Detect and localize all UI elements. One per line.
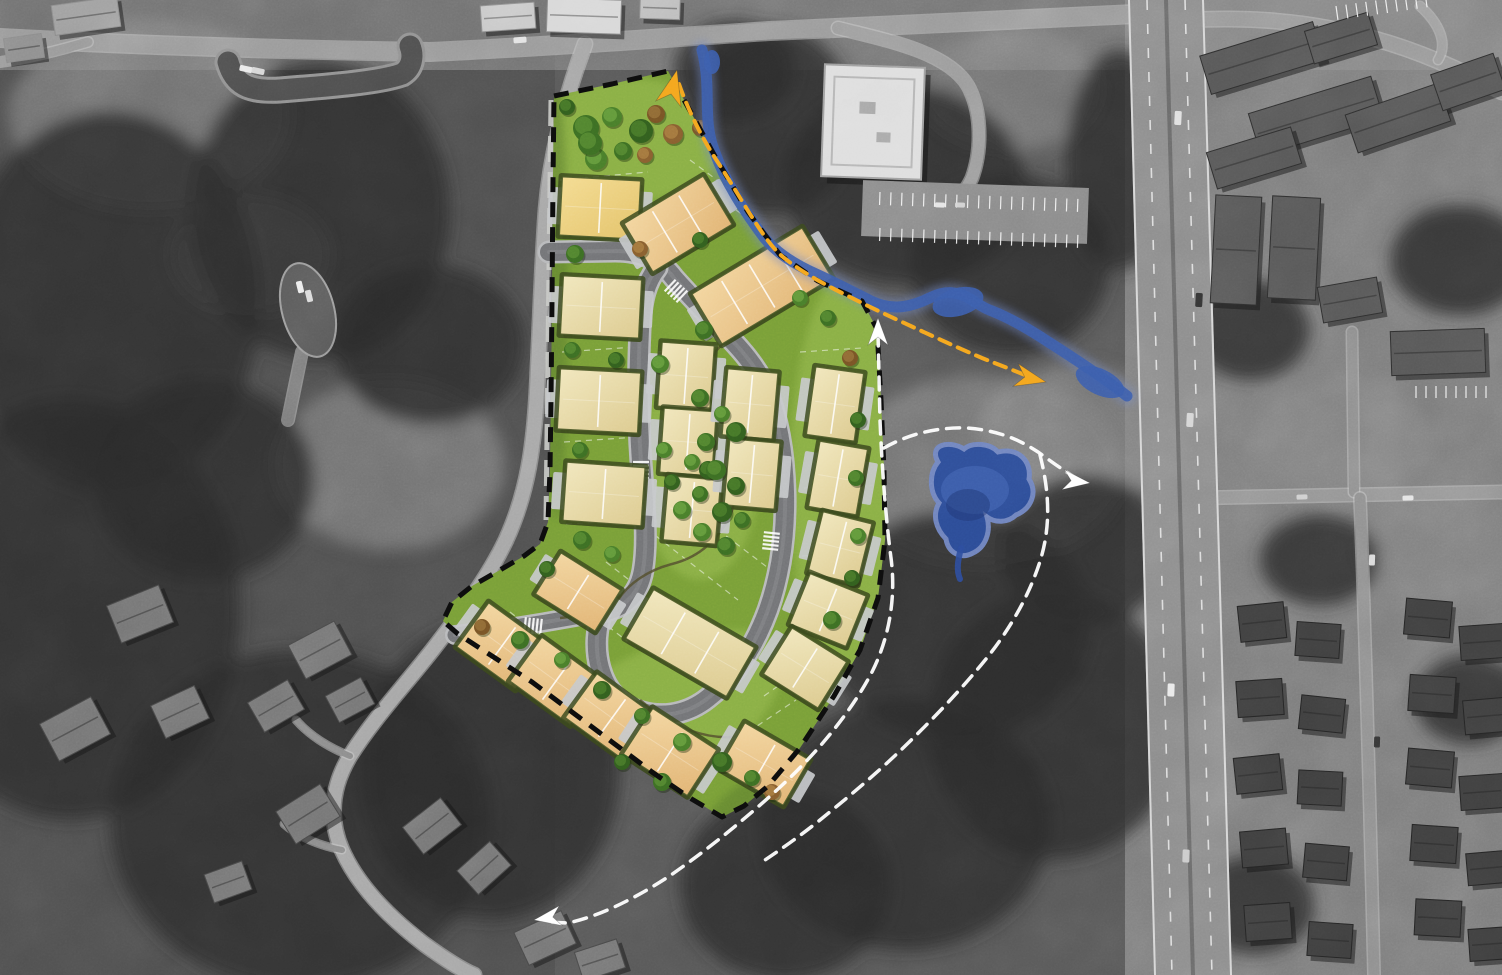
site-plan-map	[0, 0, 1502, 975]
photo-grain	[0, 0, 1502, 975]
photo-grain-overlay	[0, 0, 1502, 975]
site-plan-svg	[0, 0, 1502, 975]
